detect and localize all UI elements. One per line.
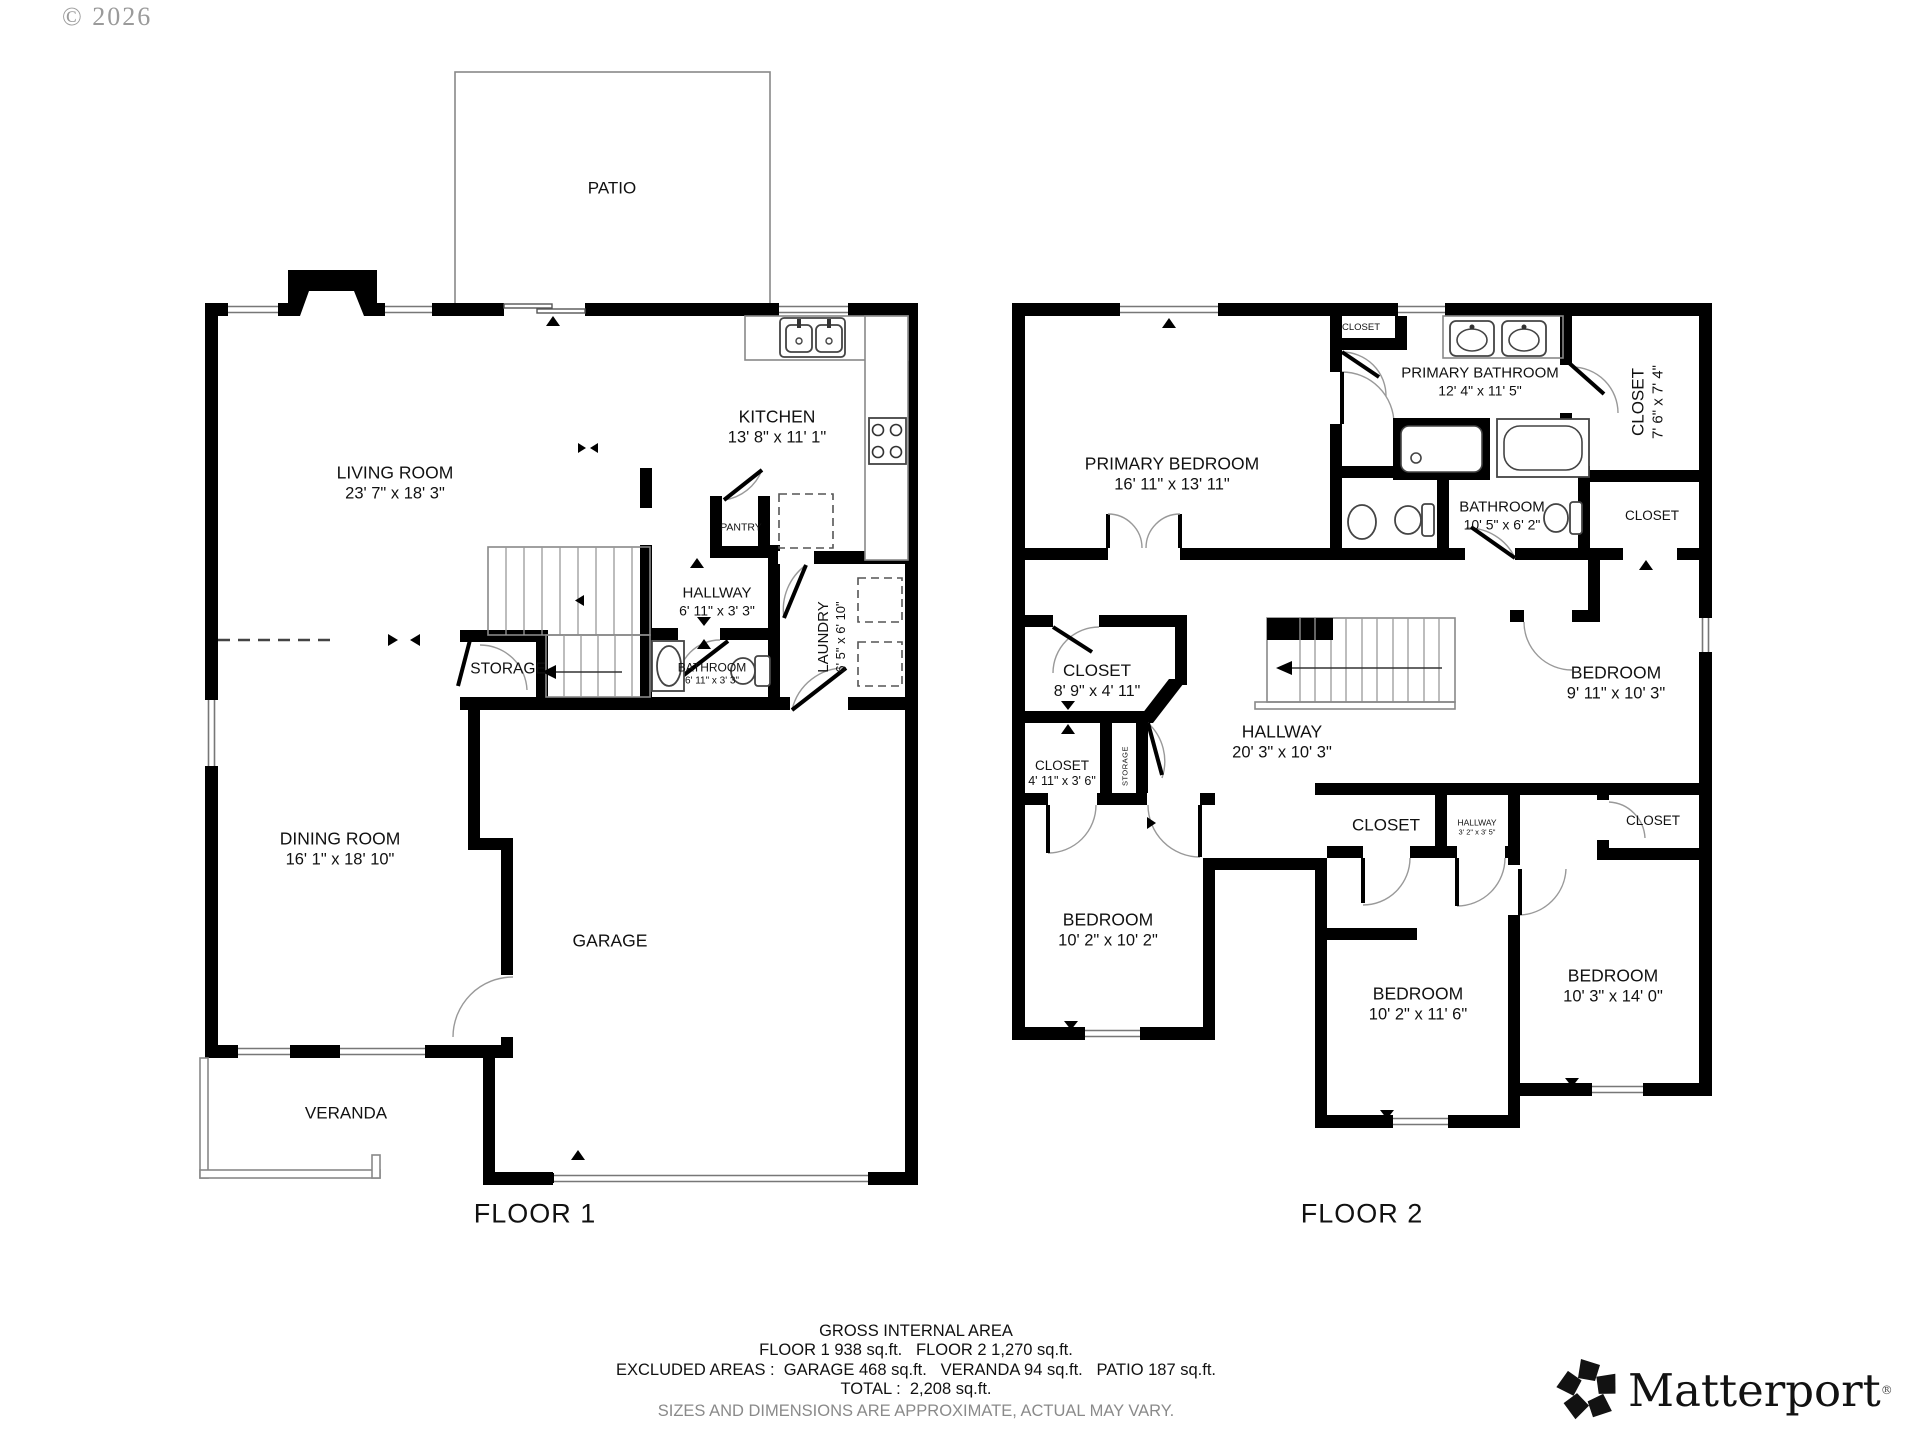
room-label-garage: GARAGE bbox=[573, 930, 648, 951]
wc-toilet bbox=[1395, 504, 1434, 536]
room-name: PRIMARY BEDROOM bbox=[1085, 453, 1259, 474]
room-dims: 8' 9" x 4' 11" bbox=[1054, 682, 1141, 702]
room-name: STORAGE bbox=[470, 661, 546, 680]
washer-dryer bbox=[858, 578, 902, 686]
room-label-closet-se: CLOSET bbox=[1626, 813, 1680, 829]
room-label-closet-411: CLOSET 4' 11" x 3' 6" bbox=[1028, 758, 1096, 790]
room-dims: 7' 6" x 7' 4" bbox=[1649, 365, 1667, 439]
matterport-logo: Matterport® bbox=[1556, 1358, 1893, 1422]
room-label-storage-f2: STORAGE bbox=[1120, 746, 1129, 786]
room-dims: 23' 7" x 18' 3" bbox=[337, 484, 454, 504]
room-dims: 6' 5" x 6' 10" bbox=[833, 601, 849, 672]
registered-mark: ® bbox=[1881, 1383, 1893, 1397]
disclaimer: SIZES AND DIMENSIONS ARE APPROXIMATE, AC… bbox=[616, 1402, 1216, 1421]
bathroom2-toilet bbox=[1544, 502, 1582, 534]
room-name: HALLWAY bbox=[1232, 721, 1332, 742]
garage-door bbox=[545, 1172, 868, 1185]
floorplan-page: PATIO LIVING ROOM 23' 7" x 18' 3" KITCHE… bbox=[0, 0, 1920, 1440]
copyright: © 2026 bbox=[62, 2, 152, 32]
room-name: BATHROOM bbox=[678, 661, 746, 676]
room-label-closet-bottom-mid: CLOSET bbox=[1352, 816, 1420, 837]
room-label-laundry: LAUNDRY 6' 5" x 6' 10" bbox=[815, 601, 849, 672]
room-name: DINING ROOM bbox=[280, 828, 401, 849]
room-dims: 4' 11" x 3' 6" bbox=[1028, 775, 1096, 790]
matterport-logo-icon bbox=[1556, 1358, 1620, 1422]
room-label-bedroom-s: BEDROOM 10' 2" x 11' 6" bbox=[1369, 983, 1467, 1024]
room-name: PANTRY bbox=[720, 522, 762, 535]
room-label-storage-f1: STORAGE bbox=[470, 661, 546, 680]
excluded-areas: EXCLUDED AREAS : GARAGE 468 sq.ft. VERAN… bbox=[616, 1361, 1216, 1380]
room-label-bedroom-ne: BEDROOM 9' 11" x 10' 3" bbox=[1567, 662, 1665, 703]
room-dims: 6' 11" x 3' 3" bbox=[678, 675, 746, 687]
room-label-bathroom-f1: BATHROOM 6' 11" x 3' 3" bbox=[678, 661, 746, 688]
room-label-living-room: LIVING ROOM 23' 7" x 18' 3" bbox=[337, 462, 454, 503]
room-name: LAUNDRY bbox=[815, 601, 833, 672]
room-label-hallway-f2: HALLWAY 20' 3" x 10' 3" bbox=[1232, 721, 1332, 762]
room-name: STORAGE bbox=[1120, 746, 1129, 786]
room-label-walkin-closet: CLOSET 7' 6" x 7' 4" bbox=[1628, 365, 1667, 439]
room-name: BEDROOM bbox=[1369, 983, 1467, 1004]
floor1-markers bbox=[388, 316, 711, 1160]
room-label-pantry: PANTRY bbox=[720, 522, 762, 535]
area-summary: GROSS INTERNAL AREA FLOOR 1 938 sq.ft. F… bbox=[616, 1322, 1216, 1421]
room-dims: 10' 2" x 11' 6" bbox=[1369, 1005, 1467, 1025]
room-name: CLOSET bbox=[1628, 365, 1649, 439]
shower bbox=[1393, 418, 1490, 480]
room-name: BATHROOM bbox=[1459, 498, 1545, 516]
room-label-veranda: VERANDA bbox=[305, 1104, 387, 1125]
room-name: CLOSET bbox=[1028, 758, 1096, 774]
room-label-closet-top: CLOSET bbox=[1342, 322, 1380, 334]
gross-area-title: GROSS INTERNAL AREA bbox=[616, 1322, 1216, 1341]
room-dims: 12' 4" x 11' 5" bbox=[1401, 383, 1559, 400]
room-name: BEDROOM bbox=[1567, 662, 1665, 683]
primary-bathroom-vanity bbox=[1443, 316, 1563, 358]
floor-areas: FLOOR 1 938 sq.ft. FLOOR 2 1,270 sq.ft. bbox=[616, 1341, 1216, 1360]
matterport-logo-text: Matterport bbox=[1628, 1364, 1881, 1417]
room-label-bathroom-f2: BATHROOM 10' 5" x 6' 2" bbox=[1459, 498, 1545, 533]
room-name: CLOSET bbox=[1054, 661, 1141, 682]
room-name: HALLWAY bbox=[679, 584, 755, 602]
kitchen-sink bbox=[780, 318, 845, 357]
room-name: CLOSET bbox=[1625, 508, 1679, 524]
room-label-patio: PATIO bbox=[588, 179, 637, 200]
room-label-closet-mid-right: CLOSET bbox=[1625, 508, 1679, 524]
room-name: VERANDA bbox=[305, 1104, 387, 1125]
room-name: PATIO bbox=[588, 179, 637, 200]
wc-sink bbox=[1348, 505, 1376, 539]
room-name: CLOSET bbox=[1352, 816, 1420, 837]
room-dims: 10' 5" x 6' 2" bbox=[1459, 517, 1545, 534]
floor1-title: FLOOR 1 bbox=[474, 1199, 597, 1230]
room-dims: 13' 8" x 11' 1" bbox=[728, 428, 826, 448]
room-name: HALLWAY bbox=[1457, 817, 1496, 827]
room-label-hallway-small: HALLWAY 3' 2" x 3' 5" bbox=[1457, 817, 1496, 837]
stove bbox=[869, 418, 906, 464]
floor2-title: FLOOR 2 bbox=[1301, 1199, 1424, 1230]
room-label-hallway-f1: HALLWAY 6' 11" x 3' 3" bbox=[679, 584, 755, 619]
room-name: BEDROOM bbox=[1563, 965, 1663, 986]
room-dims: 6' 11" x 3' 3" bbox=[679, 603, 755, 620]
room-label-primary-bedroom: PRIMARY BEDROOM 16' 11" x 13' 11" bbox=[1085, 453, 1259, 494]
refrigerator bbox=[779, 494, 833, 548]
room-label-bedroom-sw: BEDROOM 10' 2" x 10' 2" bbox=[1058, 909, 1158, 950]
room-dims: 10' 2" x 10' 2" bbox=[1058, 931, 1158, 951]
room-dims: 3' 2" x 3' 5" bbox=[1457, 828, 1496, 837]
room-dims: 20' 3" x 10' 3" bbox=[1232, 743, 1332, 763]
room-name: PRIMARY BATHROOM bbox=[1401, 364, 1559, 382]
bathtub bbox=[1497, 419, 1589, 477]
room-dims: 9' 11" x 10' 3" bbox=[1567, 684, 1665, 704]
total-area: TOTAL : 2,208 sq.ft. bbox=[616, 1380, 1216, 1399]
room-name: CLOSET bbox=[1342, 322, 1380, 334]
room-dims: 16' 1" x 18' 10" bbox=[280, 850, 401, 870]
room-name: KITCHEN bbox=[728, 406, 826, 427]
room-dims: 16' 11" x 13' 11" bbox=[1085, 475, 1259, 495]
room-dims: 10' 3" x 14' 0" bbox=[1563, 987, 1663, 1007]
floorplan-drawing bbox=[0, 0, 1920, 1440]
room-label-kitchen: KITCHEN 13' 8" x 11' 1" bbox=[728, 406, 826, 447]
room-name: LIVING ROOM bbox=[337, 462, 454, 483]
room-label-dining-room: DINING ROOM 16' 1" x 18' 10" bbox=[280, 828, 401, 869]
room-label-closet-89: CLOSET 8' 9" x 4' 11" bbox=[1054, 661, 1141, 701]
room-name: BEDROOM bbox=[1058, 909, 1158, 930]
room-name: GARAGE bbox=[573, 930, 648, 951]
room-label-bedroom-se: BEDROOM 10' 3" x 14' 0" bbox=[1563, 965, 1663, 1006]
stairs-floor2 bbox=[1255, 618, 1455, 709]
room-label-primary-bathroom: PRIMARY BATHROOM 12' 4" x 11' 5" bbox=[1401, 364, 1559, 399]
room-name: CLOSET bbox=[1626, 813, 1680, 829]
